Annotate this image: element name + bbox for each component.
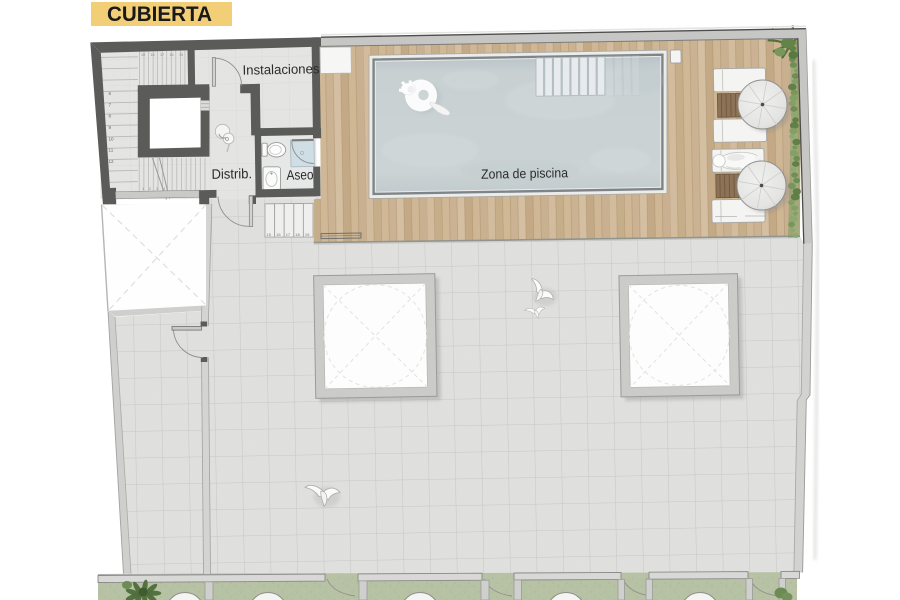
svg-text:11: 11 bbox=[109, 148, 114, 153]
svg-text:6: 6 bbox=[109, 91, 112, 96]
svg-text:19: 19 bbox=[141, 53, 145, 57]
svg-text:17: 17 bbox=[160, 53, 164, 57]
svg-text:Distrib.: Distrib. bbox=[211, 166, 252, 182]
svg-text:16: 16 bbox=[170, 53, 174, 57]
svg-text:18: 18 bbox=[151, 53, 155, 57]
svg-text:16: 16 bbox=[276, 232, 281, 237]
svg-text:3: 3 bbox=[156, 187, 158, 191]
svg-text:19: 19 bbox=[305, 232, 310, 237]
svg-text:9: 9 bbox=[109, 125, 112, 130]
svg-text:4: 4 bbox=[163, 187, 165, 191]
svg-text:10: 10 bbox=[109, 136, 115, 141]
svg-text:1: 1 bbox=[142, 187, 144, 191]
svg-text:12: 12 bbox=[109, 159, 115, 164]
svg-text:18: 18 bbox=[295, 232, 300, 237]
svg-text:Aseo: Aseo bbox=[286, 167, 314, 182]
svg-text:8: 8 bbox=[109, 114, 112, 119]
svg-text:15: 15 bbox=[179, 53, 183, 57]
svg-text:15: 15 bbox=[267, 232, 272, 237]
svg-text:Instalaciones: Instalaciones bbox=[242, 61, 320, 77]
svg-text:7: 7 bbox=[109, 102, 112, 107]
svg-text:Zona de piscina: Zona de piscina bbox=[481, 165, 569, 182]
svg-text:17: 17 bbox=[286, 232, 291, 237]
svg-text:CUBIERTA: CUBIERTA bbox=[107, 2, 212, 26]
svg-text:2: 2 bbox=[149, 187, 151, 191]
